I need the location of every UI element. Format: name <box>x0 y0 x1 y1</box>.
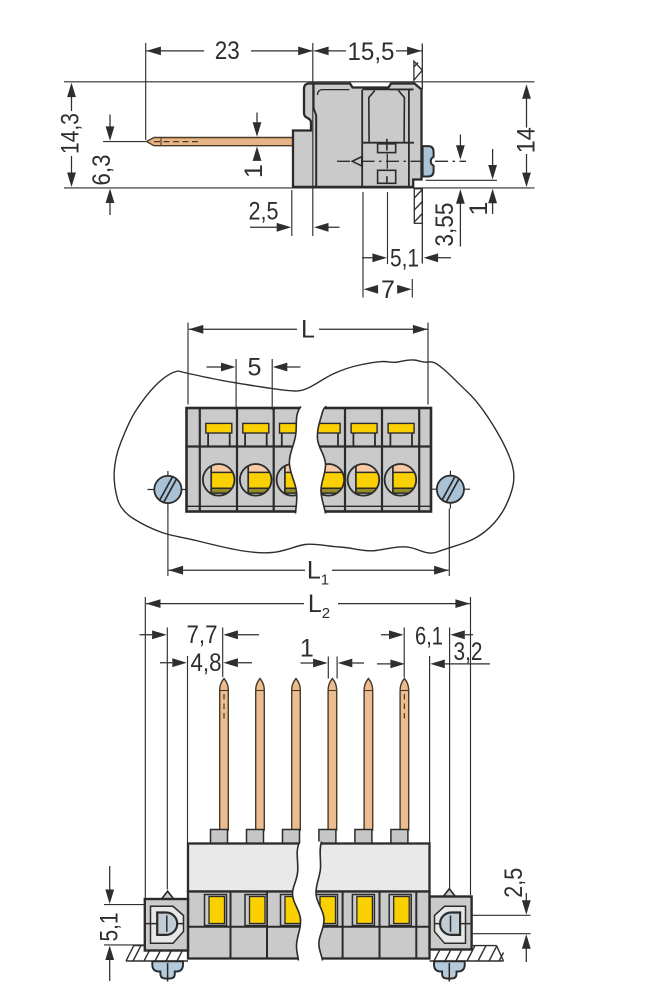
svg-text:15,5: 15,5 <box>348 38 395 66</box>
svg-text:1: 1 <box>300 635 314 663</box>
svg-text:3,2: 3,2 <box>454 638 483 666</box>
svg-text:4,8: 4,8 <box>191 649 222 677</box>
svg-text:7,7: 7,7 <box>187 621 218 649</box>
svg-text:7: 7 <box>381 276 395 304</box>
svg-text:1: 1 <box>240 164 268 178</box>
svg-text:L: L <box>301 316 315 344</box>
svg-text:3,55: 3,55 <box>431 203 459 247</box>
svg-text:1: 1 <box>465 202 493 216</box>
svg-text:6,1: 6,1 <box>415 623 443 651</box>
svg-text:14,3: 14,3 <box>57 113 85 154</box>
svg-text:L2: L2 <box>308 590 330 622</box>
svg-text:14: 14 <box>513 127 541 153</box>
svg-text:23: 23 <box>215 37 240 65</box>
svg-text:5: 5 <box>248 353 262 381</box>
svg-text:5,1: 5,1 <box>96 913 124 942</box>
svg-text:6,3: 6,3 <box>88 155 116 186</box>
svg-text:L1: L1 <box>307 556 329 588</box>
svg-text:2,5: 2,5 <box>500 868 528 898</box>
svg-text:5,1: 5,1 <box>390 245 419 273</box>
svg-text:2,5: 2,5 <box>249 198 279 226</box>
